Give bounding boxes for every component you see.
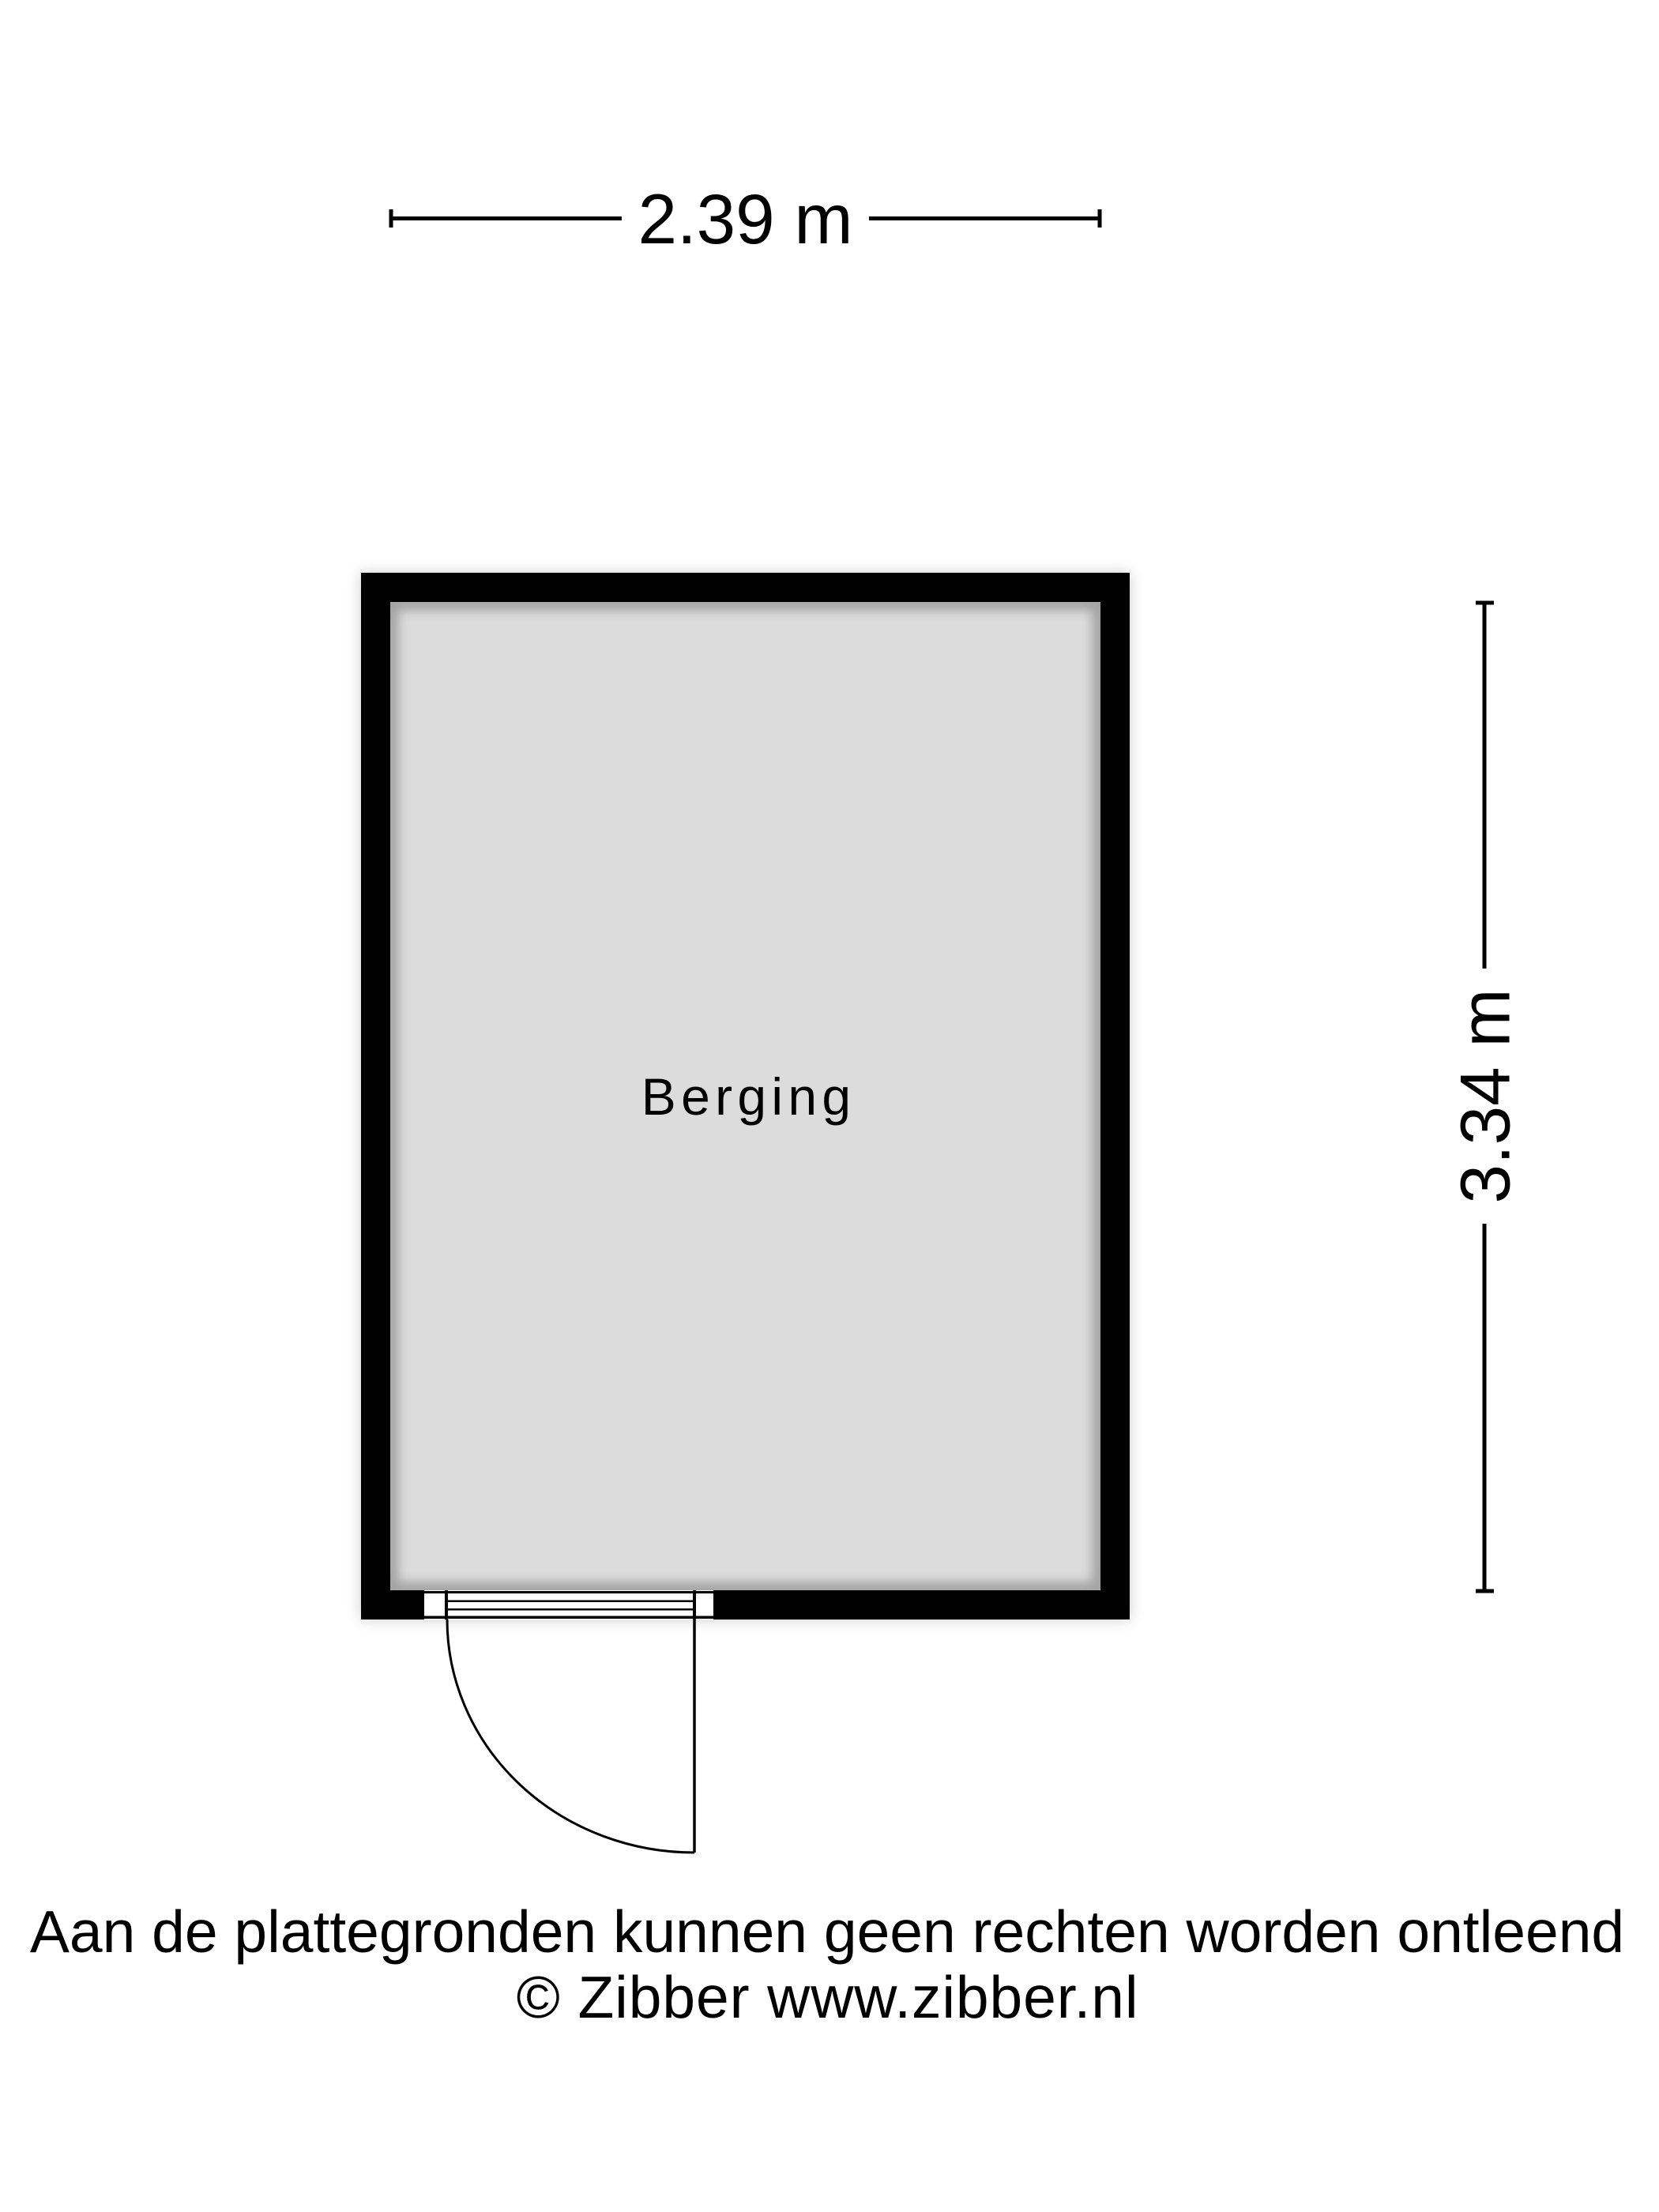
svg-text:2.39 m: 2.39 m <box>638 179 852 258</box>
svg-text:© Zibber www.zibber.nl: © Zibber www.zibber.nl <box>517 1964 1139 2030</box>
svg-text:Aan de plattegronden kunnen ge: Aan de plattegronden kunnen geen rechten… <box>30 1898 1624 1965</box>
svg-text:3.34 m: 3.34 m <box>1446 988 1525 1203</box>
svg-text:Berging: Berging <box>641 1067 856 1126</box>
